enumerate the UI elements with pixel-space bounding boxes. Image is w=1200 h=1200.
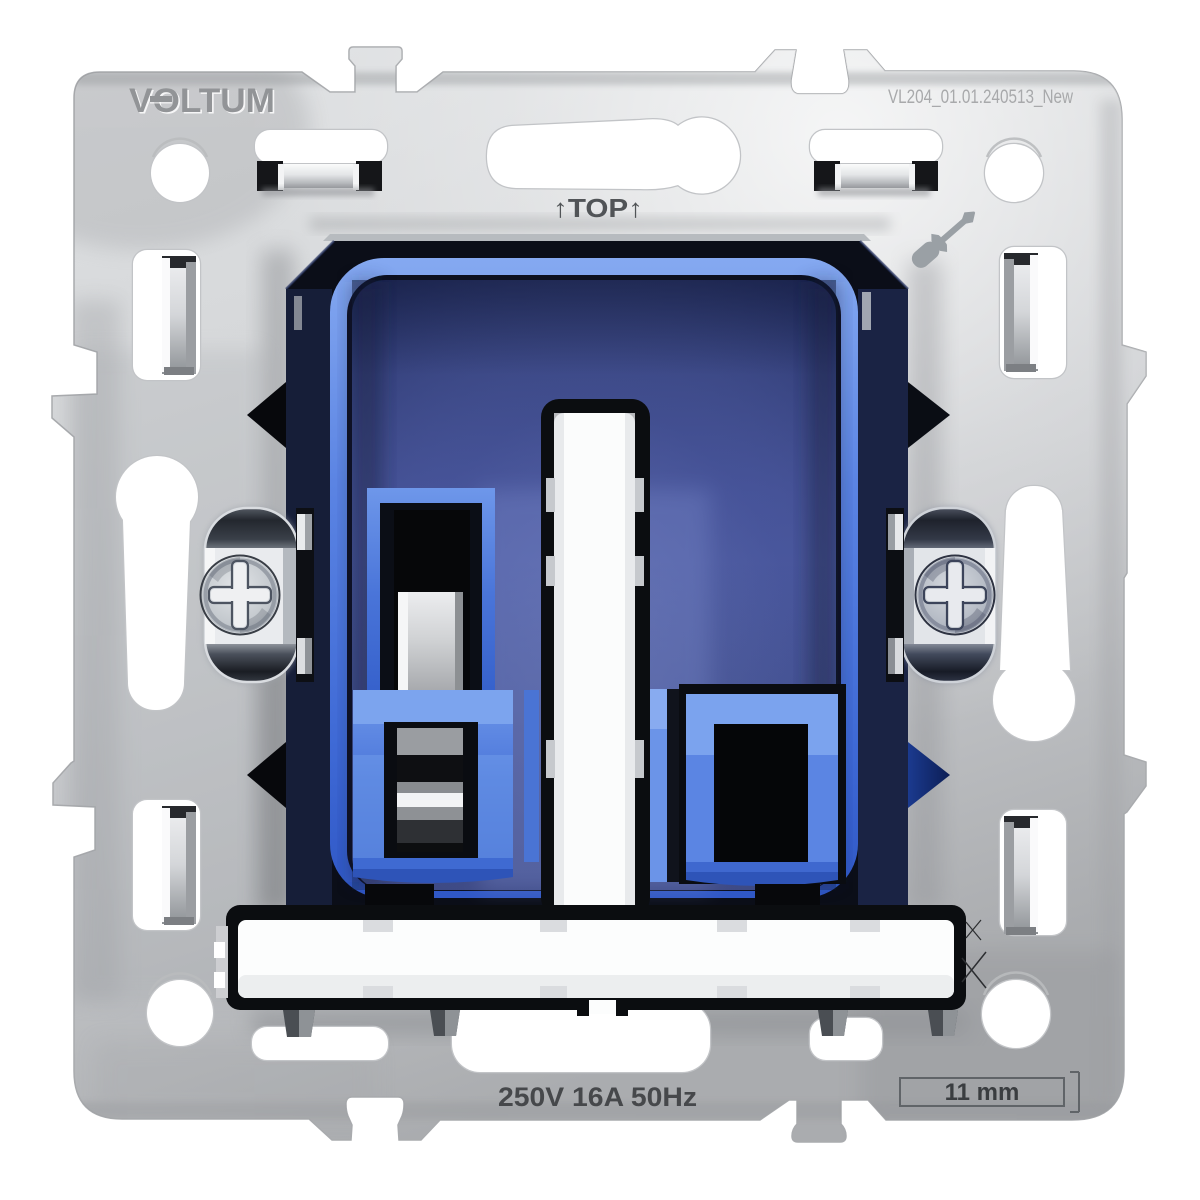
- svg-text:↑TOP↑: ↑TOP↑: [553, 193, 643, 223]
- svg-text:250V 16A 50Hz: 250V 16A 50Hz: [498, 1082, 697, 1112]
- svg-text:11 mm: 11 mm: [945, 1079, 1020, 1106]
- svg-text:VL204_01.01.240513_New: VL204_01.01.240513_New: [888, 87, 1073, 108]
